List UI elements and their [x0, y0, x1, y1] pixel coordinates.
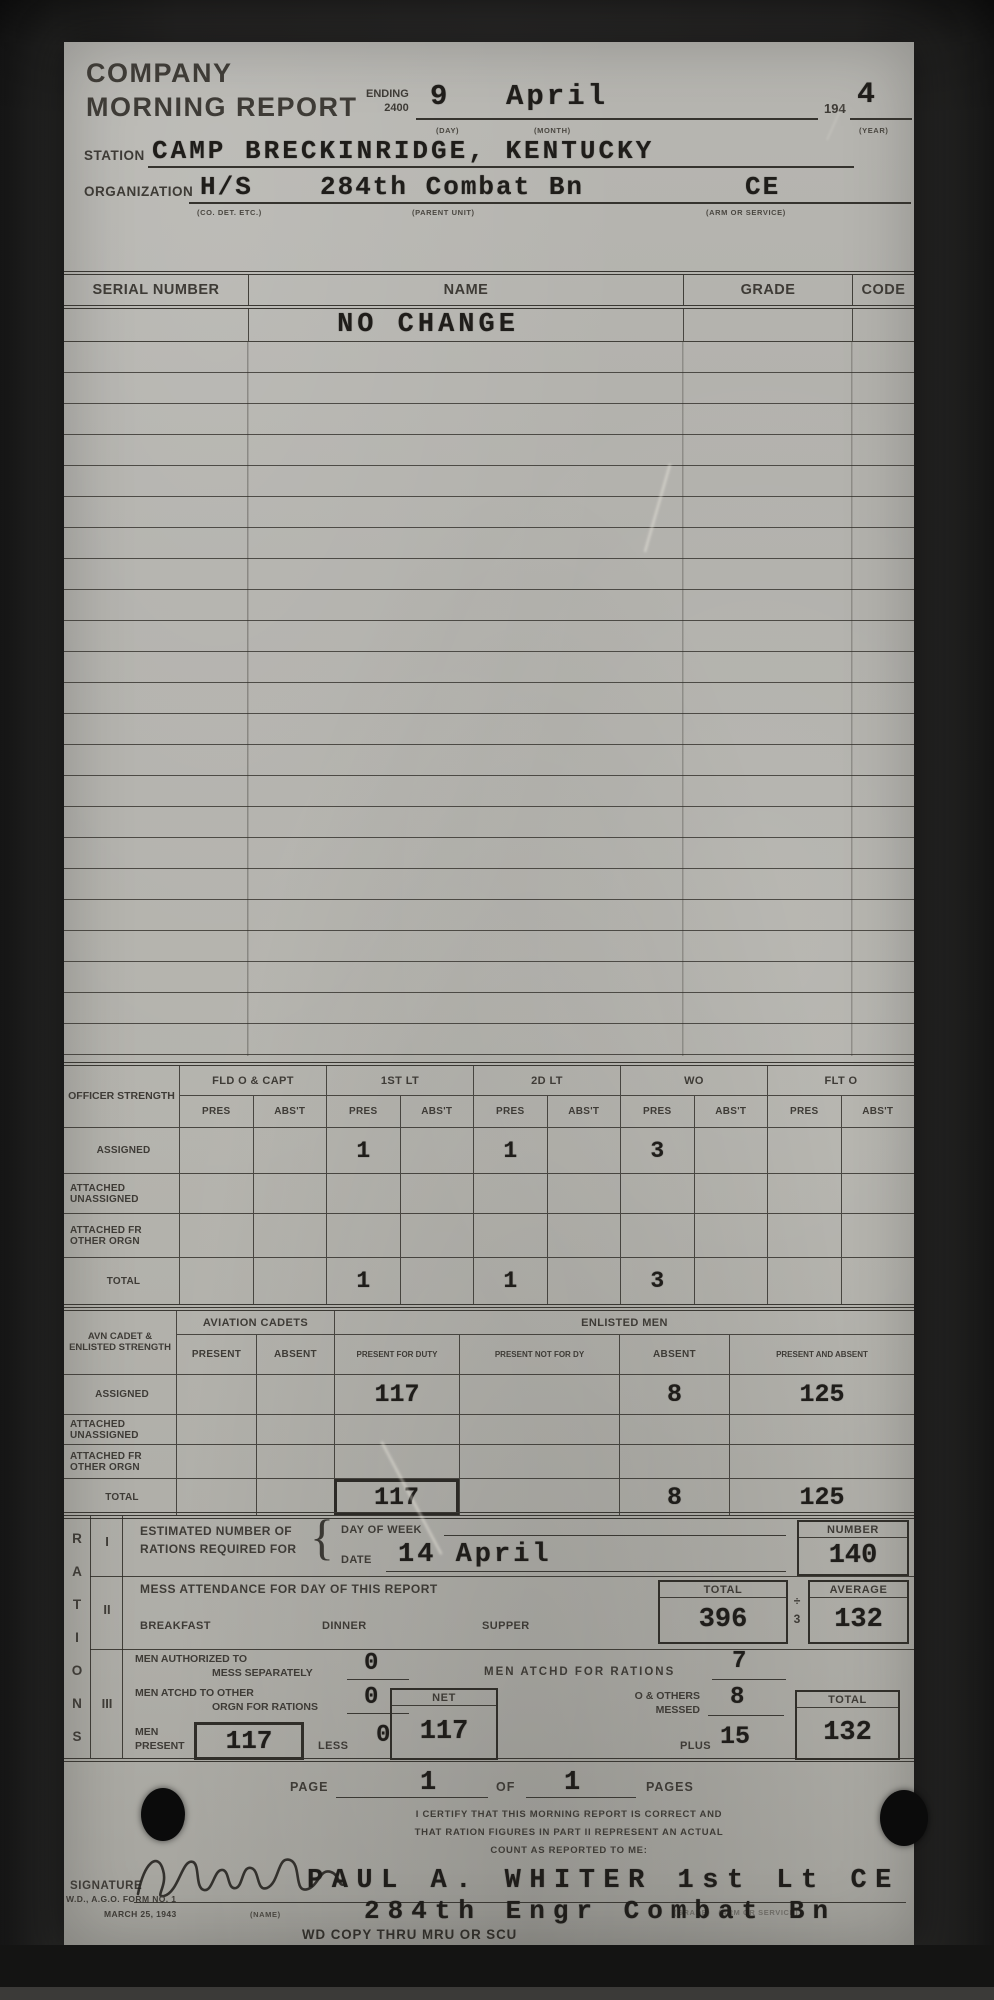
strength-value-cell: [253, 1128, 327, 1174]
signer-unit: 284th Engr Combat Bn: [364, 1896, 836, 1926]
date-label: DATE: [341, 1554, 372, 1566]
station-label: STATION: [84, 148, 145, 163]
morning-report-form: COMPANY MORNING REPORT ENDING 2400 9 Apr…: [64, 42, 914, 1945]
rations-date-underline: [386, 1552, 786, 1572]
wd-copy-stamp: WD COPY THRU MRU OR SCU: [302, 1926, 517, 1942]
men-present-box: 117: [194, 1722, 304, 1760]
strength-value-cell: [176, 1375, 256, 1415]
rations-numeral-divider: [122, 1516, 123, 1758]
organization-underline: [189, 182, 911, 204]
subheader-pres: PRES: [473, 1096, 547, 1128]
strength-value-cell: 8: [619, 1479, 729, 1515]
strength-value-cell: [176, 1415, 256, 1445]
strength-value-cell: [176, 1445, 256, 1479]
org-arm-caption: (ARM OR SERVICE): [706, 208, 786, 217]
strength-value-cell: [729, 1445, 914, 1479]
aviation-cadets-group: AVIATION CADETS: [176, 1311, 334, 1335]
estimated-rations-line2: RATIONS REQUIRED FOR: [140, 1542, 296, 1556]
strength-value-cell: 1: [326, 1258, 400, 1304]
roster-empty-row: [64, 683, 914, 714]
strength-value-cell: 125: [729, 1375, 914, 1415]
strength-value-cell: [256, 1415, 334, 1445]
divide-by: 3: [789, 1610, 805, 1628]
strength-value-cell: 3: [620, 1258, 694, 1304]
subheader-abst: ABS'T: [400, 1096, 474, 1128]
strength-value-cell: [694, 1128, 768, 1174]
atchd-other-value: 0: [364, 1684, 378, 1711]
strength-row-label: ASSIGNED: [64, 1128, 179, 1174]
of-label: OF: [496, 1780, 515, 1794]
men-present-value: 117: [197, 1725, 301, 1757]
strength-value-cell: [547, 1128, 621, 1174]
roster-empty-row: [64, 590, 914, 621]
subheader-abst: ABS'T: [253, 1096, 327, 1128]
roster-empty-row: [64, 621, 914, 652]
strength-value-cell: [256, 1445, 334, 1479]
strength-value-cell: [547, 1214, 621, 1258]
net-box: NET 117: [390, 1688, 498, 1760]
number-box: NUMBER 140: [797, 1520, 909, 1576]
strength-value-cell: [326, 1214, 400, 1258]
strength-row-label: ATTACHED FR OTHER ORGN: [64, 1445, 176, 1479]
enlisted-men-group: ENLISTED MEN: [334, 1311, 914, 1335]
atchd-rations-underline: [712, 1664, 786, 1680]
strength-value-cell: [334, 1415, 459, 1445]
roster-header-serial: SERIAL NUMBER: [64, 275, 248, 305]
rations-section: RATIONS I II III ESTIMATED NUMBER OF RAT…: [64, 1512, 914, 1762]
officer-strength-corner-label: OFFICER STRENGTH: [64, 1066, 179, 1128]
average-value: 132: [810, 1598, 907, 1642]
cert-line2: THAT RATION FIGURES IN PART II REPRESENT…: [319, 1824, 819, 1842]
roster-empty-row: [64, 993, 914, 1024]
year-underline: [850, 102, 912, 120]
divide-by-three: ÷ 3: [789, 1592, 805, 1628]
strength-value-cell: [547, 1258, 621, 1304]
strength-value-cell: [767, 1258, 841, 1304]
cert-line3: COUNT AS REPORTED TO ME:: [319, 1842, 819, 1860]
roster-empty-row: [64, 497, 914, 528]
punch-hole-left: [141, 1788, 185, 1841]
officer-group-1st-lt: 1ST LT: [326, 1066, 473, 1096]
strength-value-cell: 8: [619, 1375, 729, 1415]
strength-value-cell: [473, 1174, 547, 1214]
rations-numeral-3: III: [94, 1696, 120, 1711]
pages-underline: [526, 1774, 636, 1798]
roster-empty-row: [64, 776, 914, 807]
subheader-abst: ABS'T: [694, 1096, 768, 1128]
cadet-enlisted-table: AVN CADET & ENLISTED STRENGTH AVIATION C…: [64, 1307, 914, 1519]
strength-value-cell: [459, 1479, 619, 1515]
strength-value-cell: [459, 1375, 619, 1415]
form-title-line2: MORNING REPORT: [86, 92, 358, 123]
strength-value-cell: [179, 1214, 253, 1258]
name-caption: (NAME): [250, 1910, 281, 1919]
strength-value-cell: [767, 1214, 841, 1258]
day-of-week-underline: [444, 1520, 786, 1536]
strength-row-label: ATTACHED FR OTHER ORGN: [64, 1214, 179, 1258]
day-caption: (DAY): [436, 126, 459, 135]
roster-empty-row: [64, 342, 914, 373]
strength-value-cell: [459, 1415, 619, 1445]
officer-group-2d-lt: 2D LT: [473, 1066, 620, 1096]
strength-value-cell: [841, 1258, 915, 1304]
page-value: 1: [420, 1768, 436, 1798]
strength-value-cell: [400, 1174, 474, 1214]
rations-total-box: TOTAL 132: [795, 1690, 900, 1760]
men-authorized-line1: MEN AUTHORIZED TO: [135, 1653, 247, 1665]
year-caption: (YEAR): [859, 126, 888, 135]
officer-group-wo: WO: [620, 1066, 767, 1096]
men-atchd-other-line1: MEN ATCHD TO OTHER: [135, 1687, 254, 1699]
men-present-line2: PRESENT: [135, 1740, 185, 1752]
atchd-rations-value: 7: [732, 1648, 746, 1675]
strength-value-cell: [841, 1128, 915, 1174]
strength-value-cell: 117: [334, 1479, 459, 1515]
org-unit-caption: (CO. DET. ETC.): [197, 208, 262, 217]
strength-value-cell: [253, 1214, 327, 1258]
cadets-absent-header: ABSENT: [256, 1335, 334, 1375]
supper-label: SUPPER: [482, 1620, 530, 1632]
strength-value-cell: [767, 1174, 841, 1214]
strength-value-cell: 1: [326, 1128, 400, 1174]
roster-empty-row: [64, 373, 914, 404]
roster-empty-row: [64, 528, 914, 559]
strength-value-cell: [841, 1214, 915, 1258]
pages-label: PAGES: [646, 1780, 694, 1794]
roster-header-grade: GRADE: [683, 275, 852, 305]
strength-value-cell: [176, 1479, 256, 1515]
roster-grade-cell: [683, 309, 852, 341]
strength-value-cell: [179, 1174, 253, 1214]
roster-empty-row: [64, 869, 914, 900]
strength-row-label: ATTACHED UNASSIGNED: [64, 1415, 176, 1445]
ending-time: 2400: [366, 102, 409, 116]
roster-empty-row: [64, 807, 914, 838]
day-of-week-label: DAY OF WEEK: [341, 1524, 422, 1536]
strength-value-cell: [459, 1445, 619, 1479]
others-line1: O & OTHERS: [554, 1690, 700, 1702]
strength-value-cell: [473, 1214, 547, 1258]
strength-value-cell: 1: [473, 1128, 547, 1174]
form-number: W.D., A.G.O. FORM NO. 1: [66, 1894, 176, 1904]
net-value: 117: [392, 1706, 496, 1758]
roster-serial-cell: [64, 309, 248, 341]
cert-line1: I CERTIFY THAT THIS MORNING REPORT IS CO…: [319, 1806, 819, 1824]
strength-row-label: TOTAL: [64, 1258, 179, 1304]
men-atchd-other-line2: ORGN FOR RATIONS: [212, 1701, 318, 1713]
enlisted-present-for-duty-header: PRESENT FOR DUTY: [334, 1335, 459, 1375]
mess-attendance-heading: MESS ATTENDANCE FOR DAY OF THIS REPORT: [140, 1582, 438, 1596]
strength-value-cell: [620, 1174, 694, 1214]
roster-empty-row: [64, 745, 914, 776]
strength-value-cell: 1: [473, 1258, 547, 1304]
net-label: NET: [392, 1690, 496, 1706]
men-present-line1: MEN: [135, 1726, 158, 1738]
roster-empty-row: [64, 962, 914, 993]
roster-empty-row: [64, 652, 914, 683]
photo-dark-band: [0, 1945, 994, 1987]
number-label: NUMBER: [799, 1522, 907, 1538]
strength-value-cell: [253, 1258, 327, 1304]
strength-value-cell: [620, 1214, 694, 1258]
strength-value-cell: 3: [620, 1128, 694, 1174]
no-change-entry: NO CHANGE: [337, 310, 519, 340]
officer-group-flt-o: FLT O: [767, 1066, 914, 1096]
station-underline: [148, 146, 854, 168]
divide-symbol: ÷: [789, 1592, 805, 1610]
strength-value-cell: [400, 1128, 474, 1174]
signer-name: PAUL A. WHITER 1st Lt CE: [307, 1866, 900, 1896]
strength-value-cell: [547, 1174, 621, 1214]
roster-empty-row: [64, 714, 914, 745]
roster-first-row: NO CHANGE: [64, 309, 914, 342]
strength-value-cell: [326, 1174, 400, 1214]
scanned-photo-background: COMPANY MORNING REPORT ENDING 2400 9 Apr…: [0, 0, 994, 2000]
rations-side-label: RATIONS: [66, 1522, 88, 1753]
org-parent-caption: (PARENT UNIT): [412, 208, 475, 217]
officer-group-fldo-capt: FLD O & CAPT: [179, 1066, 326, 1096]
estimated-rations-line1: ESTIMATED NUMBER OF: [140, 1524, 292, 1538]
organization-label: ORGANIZATION: [84, 184, 193, 199]
strength-value-cell: 125: [729, 1479, 914, 1515]
mess-total-value: 396: [660, 1598, 786, 1642]
enlisted-present-and-absent-header: PRESENT AND ABSENT: [729, 1335, 914, 1375]
strength-value-cell: [179, 1128, 253, 1174]
strength-value-cell: [729, 1415, 914, 1445]
enlisted-absent-header: ABSENT: [619, 1335, 729, 1375]
strength-value-cell: [841, 1174, 915, 1214]
signature-label: SIGNATURE: [70, 1880, 142, 1892]
roster-empty-row: [64, 1024, 914, 1055]
mess-total-label: TOTAL: [660, 1582, 786, 1598]
number-value: 140: [799, 1538, 907, 1574]
strength-value-cell: [767, 1128, 841, 1174]
rations-numeral-1: I: [94, 1534, 120, 1549]
strength-value-cell: [694, 1258, 768, 1304]
plus-label: PLUS: [680, 1740, 711, 1752]
rations-total-value: 132: [797, 1708, 898, 1758]
roster-header-code: CODE: [852, 275, 914, 305]
photo-bottom-strip: [0, 1987, 994, 2000]
strength-value-cell: 117: [334, 1375, 459, 1415]
rations-total-label: TOTAL: [797, 1692, 898, 1708]
subheader-pres: PRES: [326, 1096, 400, 1128]
certification-text: I CERTIFY THAT THIS MORNING REPORT IS CO…: [319, 1806, 819, 1860]
mess-total-box: TOTAL 396: [658, 1580, 788, 1644]
rations-part1-divider: [90, 1576, 914, 1577]
strength-value-cell: [694, 1174, 768, 1214]
form-date: MARCH 25, 1943: [104, 1909, 177, 1919]
punch-hole-right: [880, 1790, 928, 1846]
strength-row-label: ATTACHED UNASSIGNED: [64, 1174, 179, 1214]
roster-header-name: NAME: [248, 275, 683, 305]
officer-strength-table: OFFICER STRENGTH FLD O & CAPT 1ST LT 2D …: [64, 1062, 914, 1308]
roster-empty-row: [64, 466, 914, 497]
roster-name-cell: NO CHANGE: [248, 309, 683, 341]
form-title-line1: COMPANY: [86, 58, 233, 89]
roster-empty-row: [64, 838, 914, 869]
less-label: LESS: [318, 1740, 348, 1752]
strength-value-cell: [253, 1174, 327, 1214]
subheader-pres: PRES: [179, 1096, 253, 1128]
enlisted-present-not-for-duty-header: PRESENT NOT FOR DY: [459, 1335, 619, 1375]
month-caption: (MONTH): [534, 126, 571, 135]
roster-empty-row: [64, 900, 914, 931]
less-value: 0: [376, 1722, 390, 1749]
strength-row-label: ASSIGNED: [64, 1375, 176, 1415]
roster-empty-rows: [64, 342, 914, 1056]
men-authorized-line2: MESS SEPARATELY: [212, 1667, 313, 1679]
subheader-pres: PRES: [620, 1096, 694, 1128]
cadet-enlisted-corner-label: AVN CADET & ENLISTED STRENGTH: [64, 1311, 176, 1375]
rations-part2-divider: [90, 1649, 914, 1650]
roster-code-cell: [852, 309, 914, 341]
roster-header-row: SERIAL NUMBER NAME GRADE CODE: [64, 271, 914, 309]
roster-empty-row: [64, 435, 914, 466]
cadets-present-header: PRESENT: [176, 1335, 256, 1375]
brace-glyph: {: [310, 1508, 334, 1566]
rations-letter-divider: [90, 1516, 91, 1758]
ending-label: ENDING: [366, 88, 409, 102]
average-box: AVERAGE 132: [808, 1580, 909, 1644]
date-underline: [416, 102, 818, 120]
auth-value: 0: [364, 1650, 378, 1677]
rations-numeral-2: II: [94, 1602, 120, 1617]
strength-value-cell: [619, 1445, 729, 1479]
roster-empty-row: [64, 931, 914, 962]
strength-value-cell: [256, 1375, 334, 1415]
pages-value: 1: [564, 1768, 580, 1798]
others-value: 8: [730, 1684, 744, 1711]
others-underline: [708, 1700, 784, 1716]
others-line2: MESSED: [554, 1704, 700, 1716]
strength-value-cell: [400, 1214, 474, 1258]
roster-empty-row: [64, 559, 914, 590]
page-label: PAGE: [290, 1780, 329, 1794]
breakfast-label: BREAKFAST: [140, 1620, 211, 1632]
subheader-pres: PRES: [767, 1096, 841, 1128]
strength-value-cell: [179, 1258, 253, 1304]
average-label: AVERAGE: [810, 1582, 907, 1598]
strength-row-label: TOTAL: [64, 1479, 176, 1515]
plus-value: 15: [720, 1722, 750, 1751]
subheader-abst: ABS'T: [841, 1096, 915, 1128]
dinner-label: DINNER: [322, 1620, 367, 1632]
strength-value-cell: [400, 1258, 474, 1304]
page-underline: [336, 1774, 488, 1798]
strength-value-cell: [619, 1415, 729, 1445]
strength-value-cell: [694, 1214, 768, 1258]
subheader-abst: ABS'T: [547, 1096, 621, 1128]
roster-empty-row: [64, 404, 914, 435]
men-atchd-rations-label: MEN ATCHD FOR RATIONS: [484, 1666, 675, 1678]
